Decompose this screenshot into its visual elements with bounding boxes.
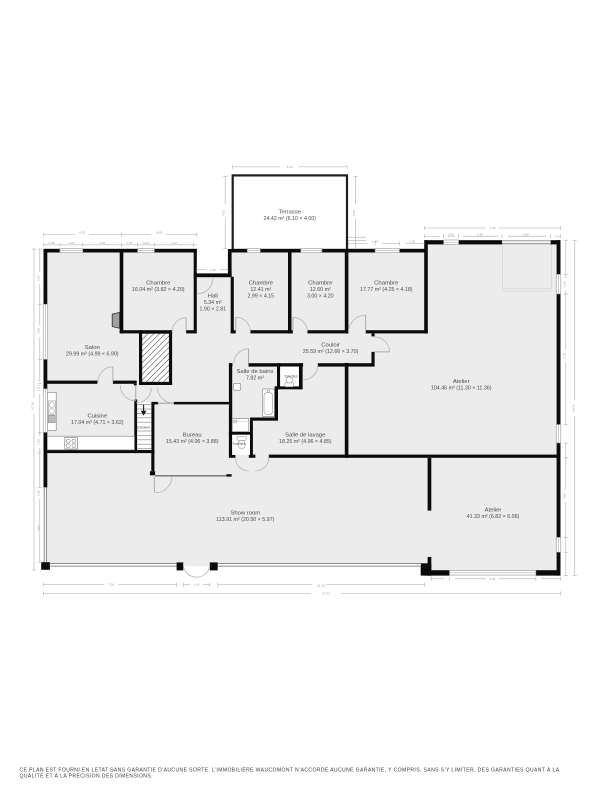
svg-text:29.99 m² (4.99 × 6.90): 29.99 m² (4.99 × 6.90) — [66, 352, 119, 358]
svg-text:Terrasse: Terrasse — [279, 210, 302, 216]
svg-text:1.85: 1.85 — [36, 490, 40, 496]
svg-text:Couloir: Couloir — [321, 343, 340, 349]
svg-text:1.90 × 2.81: 1.90 × 2.81 — [199, 307, 226, 313]
svg-text:Salle de lavage: Salle de lavage — [285, 433, 326, 439]
svg-text:7.18: 7.18 — [108, 583, 114, 587]
svg-text:2.35: 2.35 — [477, 232, 483, 236]
svg-text:1.44: 1.44 — [372, 239, 378, 243]
svg-text:16.04 m² (3.82 × 4.20): 16.04 m² (3.82 × 4.20) — [132, 287, 185, 293]
svg-text:Show room: Show room — [230, 511, 260, 517]
svg-text:Chambre: Chambre — [249, 281, 274, 287]
svg-text:2.09: 2.09 — [99, 241, 105, 245]
svg-text:1.90: 1.90 — [210, 268, 216, 272]
svg-text:18.25 m² (4.96 × 4.85): 18.25 m² (4.96 × 4.85) — [279, 439, 332, 445]
svg-text:Salon: Salon — [85, 345, 100, 351]
svg-text:1.36: 1.36 — [409, 239, 415, 243]
svg-text:2.99: 2.99 — [36, 328, 40, 334]
svg-text:4.00: 4.00 — [352, 210, 356, 216]
svg-text:7.33: 7.33 — [489, 226, 495, 230]
svg-text:Atelier: Atelier — [485, 508, 502, 514]
svg-text:27.93: 27.93 — [322, 592, 330, 596]
svg-text:Cuisine: Cuisine — [87, 414, 107, 420]
svg-text:7.82 m²: 7.82 m² — [246, 376, 264, 382]
svg-text:0.91: 0.91 — [143, 241, 149, 245]
svg-text:12.41 m²: 12.41 m² — [250, 287, 271, 293]
svg-text:1.43: 1.43 — [193, 583, 199, 587]
svg-text:2.12: 2.12 — [171, 241, 177, 245]
svg-text:Chambre: Chambre — [308, 281, 333, 287]
svg-text:0.87: 0.87 — [126, 241, 132, 245]
svg-text:Bureau: Bureau — [183, 433, 202, 439]
svg-text:2.97: 2.97 — [36, 275, 40, 281]
svg-text:Chambre: Chambre — [146, 281, 171, 287]
svg-text:41.33 m² (6.82 × 6.06): 41.33 m² (6.82 × 6.06) — [467, 514, 520, 520]
svg-text:Hall: Hall — [208, 294, 218, 300]
svg-text:4.00: 4.00 — [222, 210, 226, 216]
svg-text:4.05: 4.05 — [156, 231, 162, 235]
svg-text:Salle de bains: Salle de bains — [236, 369, 273, 375]
svg-text:113.91 m² (20.50 × 5.97): 113.91 m² (20.50 × 5.97) — [216, 517, 274, 523]
svg-text:7.05: 7.05 — [562, 353, 566, 359]
svg-text:24.42 m² (6.10 × 4.00): 24.42 m² (6.10 × 4.00) — [264, 216, 317, 222]
svg-text:1.31: 1.31 — [36, 385, 40, 391]
svg-text:17.04 m² (4.71 × 3.62): 17.04 m² (4.71 × 3.62) — [71, 420, 124, 426]
svg-text:4.86: 4.86 — [562, 493, 566, 499]
svg-text:3.00 × 4.20: 3.00 × 4.20 — [307, 294, 334, 300]
svg-text:Toilettes: Toilettes — [232, 442, 246, 446]
svg-text:2.35: 2.35 — [36, 439, 40, 445]
svg-text:6.10: 6.10 — [287, 165, 293, 169]
svg-text:12.60 m²: 12.60 m² — [310, 287, 331, 293]
svg-text:4.66: 4.66 — [489, 577, 495, 581]
svg-text:5.34 m²: 5.34 m² — [204, 300, 222, 306]
svg-text:4.04: 4.04 — [36, 525, 40, 531]
svg-text:17.34: 17.34 — [31, 402, 35, 410]
svg-text:4.20: 4.20 — [79, 231, 85, 235]
svg-text:QUALITE ET À LA PRÉCISION DES: QUALITE ET À LA PRÉCISION DES DIMENSIONS… — [20, 772, 153, 779]
svg-text:104.46 m² (11.30 × 11.36): 104.46 m² (11.30 × 11.36) — [431, 386, 492, 392]
svg-text:15.43 m² (4.06 × 3.88): 15.43 m² (4.06 × 3.88) — [166, 439, 219, 445]
svg-text:1.06: 1.06 — [562, 281, 566, 287]
svg-text:2.99 × 4.15: 2.99 × 4.15 — [247, 294, 274, 300]
svg-text:25.59 m² (12.66 × 3.70): 25.59 m² (12.66 × 3.70) — [303, 349, 359, 355]
svg-text:0.81: 0.81 — [448, 232, 454, 236]
svg-text:18.10: 18.10 — [571, 404, 575, 412]
svg-text:17.77 m² (4.25 × 4.18): 17.77 m² (4.25 × 4.18) — [360, 287, 413, 293]
svg-text:11.18: 11.18 — [317, 583, 325, 587]
svg-text:Atelier: Atelier — [453, 379, 470, 385]
svg-text:Chambre: Chambre — [374, 281, 399, 287]
svg-text:Toilettes: Toilettes — [284, 375, 298, 379]
svg-text:Escalier: Escalier — [137, 426, 151, 430]
svg-text:1.24: 1.24 — [68, 241, 74, 245]
svg-text:CE PLAN EST FOURNI EN LETAT SA: CE PLAN EST FOURNI EN LETAT SANS GARANTI… — [20, 766, 560, 773]
svg-text:0.88: 0.88 — [49, 241, 55, 245]
svg-text:2.62: 2.62 — [523, 232, 529, 236]
